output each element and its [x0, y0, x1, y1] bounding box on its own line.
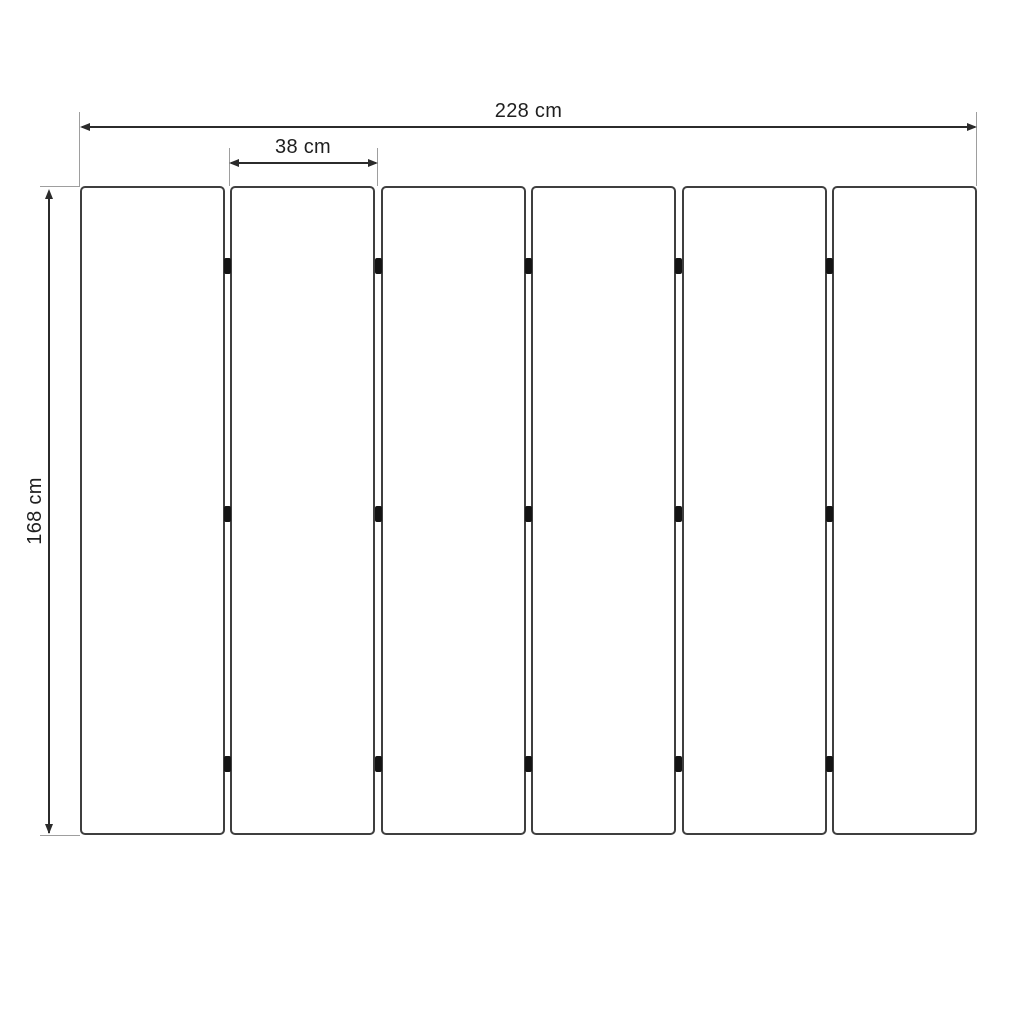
hinge-mark-5-1 — [826, 258, 833, 274]
arrowhead-right-icon — [967, 123, 977, 131]
technical-drawing: 228 cm 38 cm 168 cm — [0, 0, 1024, 1024]
panel-width-label: 38 cm — [229, 136, 377, 158]
extension-line-bottom — [40, 835, 80, 836]
panel-2 — [230, 186, 375, 835]
hinge-mark-5-2 — [826, 506, 833, 522]
hinge-mark-4-3 — [675, 756, 682, 772]
hinge-mark-2-1 — [375, 258, 382, 274]
height-label: 168 cm — [24, 477, 46, 544]
arrowhead-right-icon — [368, 159, 378, 167]
panel-5 — [682, 186, 827, 835]
hinge-mark-5-3 — [826, 756, 833, 772]
dimension-line-total-width — [82, 126, 975, 128]
hinge-mark-1-1 — [224, 258, 231, 274]
hinge-mark-4-2 — [675, 506, 682, 522]
arrowhead-down-icon — [45, 824, 53, 834]
dimension-line-height — [48, 192, 50, 833]
total-width-label: 228 cm — [80, 100, 977, 122]
hinge-mark-4-1 — [675, 258, 682, 274]
panel-3 — [381, 186, 526, 835]
arrowhead-left-icon — [80, 123, 90, 131]
hinge-mark-3-2 — [525, 506, 532, 522]
hinge-mark-2-2 — [375, 506, 382, 522]
hinge-mark-2-3 — [375, 756, 382, 772]
hinge-mark-1-3 — [224, 756, 231, 772]
extension-line-right — [377, 148, 378, 186]
hinge-mark-3-3 — [525, 756, 532, 772]
panel-1 — [80, 186, 225, 835]
hinge-mark-3-1 — [525, 258, 532, 274]
hinge-mark-1-2 — [224, 506, 231, 522]
panel-4 — [531, 186, 676, 835]
panel-6 — [832, 186, 977, 835]
arrowhead-left-icon — [229, 159, 239, 167]
extension-line-top — [40, 186, 80, 187]
arrowhead-up-icon — [45, 189, 53, 199]
dimension-line-panel-width — [231, 162, 376, 164]
